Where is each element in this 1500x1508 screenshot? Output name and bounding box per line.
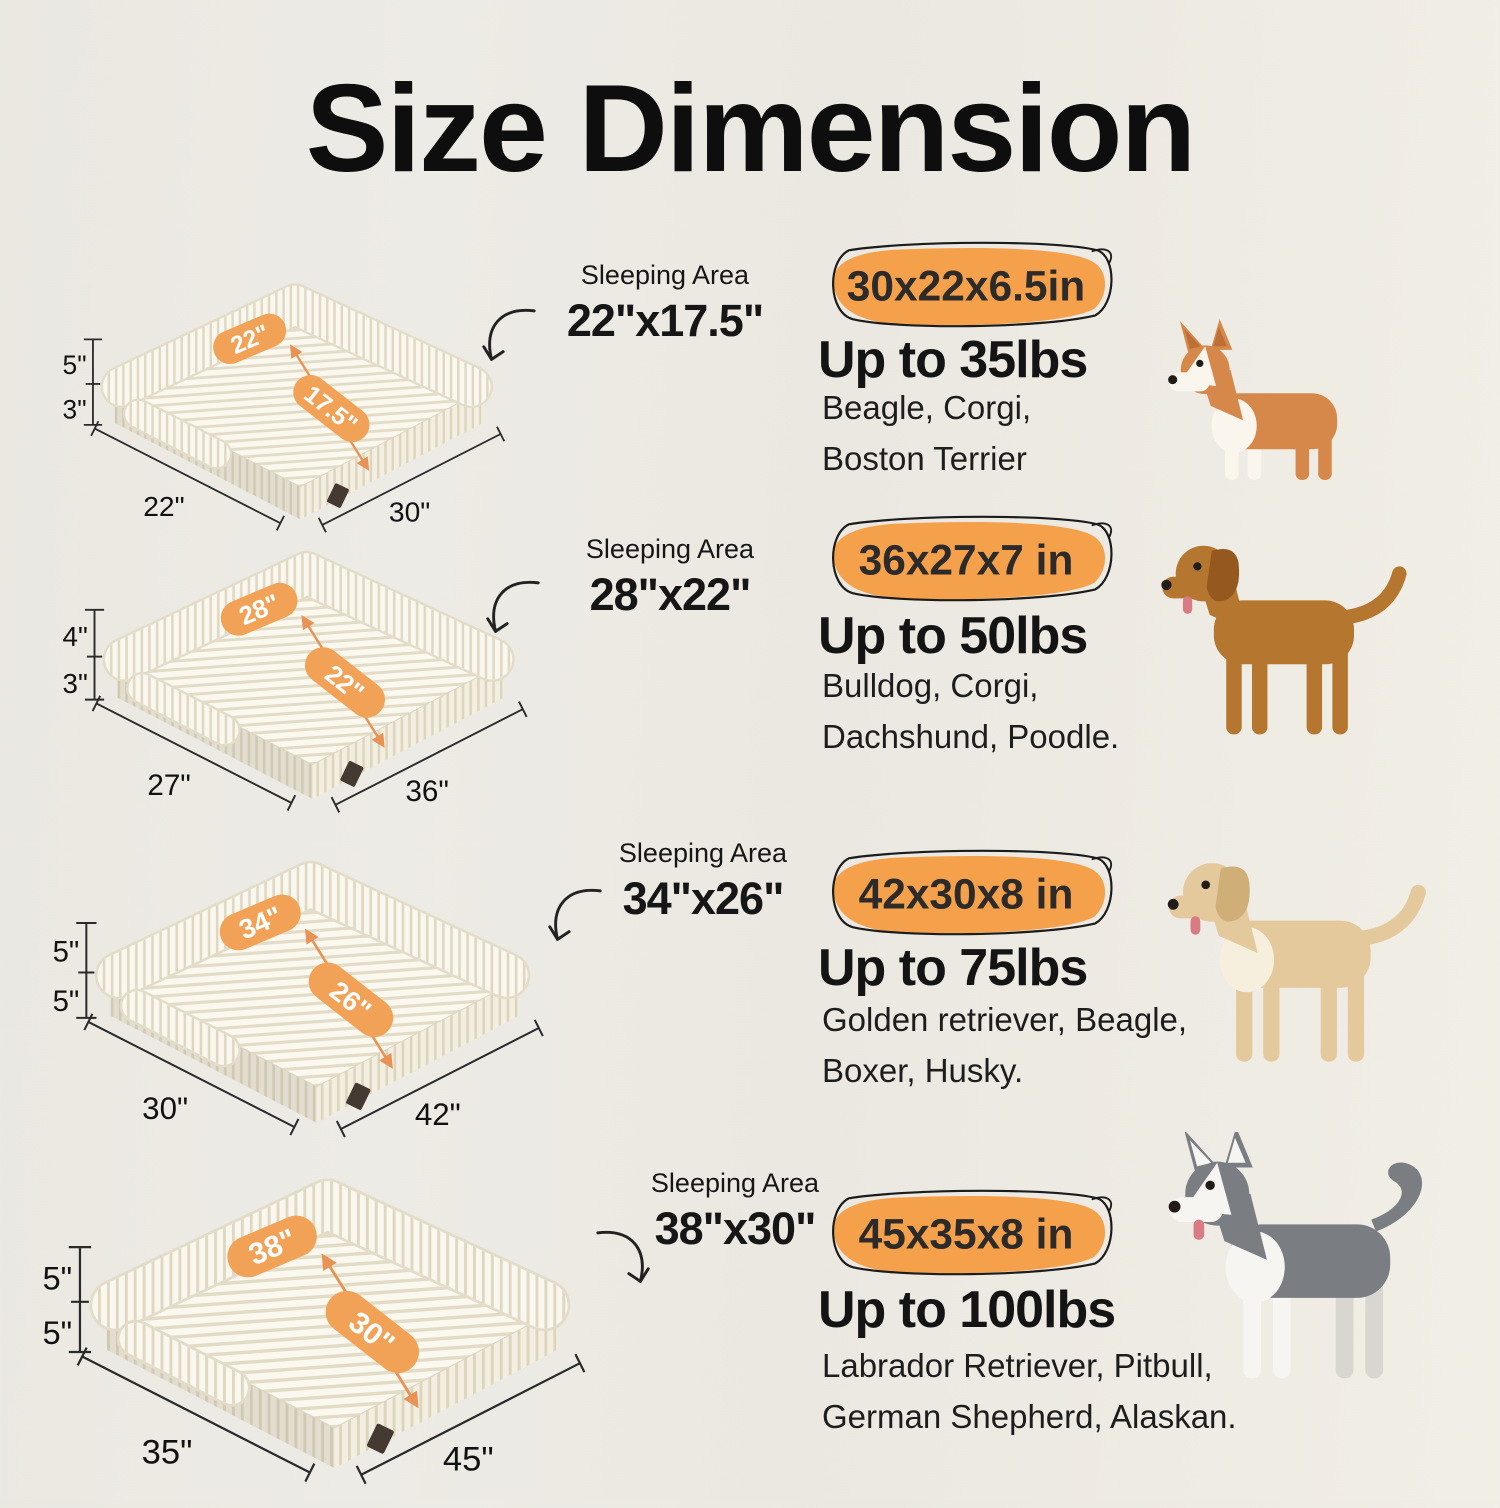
sleeping-area-callout: Sleeping Area 34"x26" xyxy=(568,838,838,925)
golden-retriever-illustration xyxy=(1152,520,1420,743)
width-label: 36" xyxy=(405,775,448,808)
dog-bed-isometric-drawing: 34" 26" 4.5" 3.5" 30" 42" xyxy=(52,826,557,1159)
base-height-label: 3.5" xyxy=(42,1315,72,1351)
base-height-label: 3" xyxy=(63,395,87,425)
breed-line: Dachshund, Poodle. xyxy=(822,711,1119,762)
breed-line: Golden retriever, Beagle, xyxy=(822,994,1187,1045)
height-dimension-lines xyxy=(85,610,104,700)
breed-line: Boston Terrier xyxy=(822,433,1031,484)
base-height-label: 3.5" xyxy=(52,985,79,1018)
husky-dog-photo xyxy=(1158,1132,1466,1388)
sleeping-area-label: Sleeping Area xyxy=(535,534,805,565)
bed-diagram-36x27: 28" 22" 4" 3" 27" 36" xyxy=(62,518,540,833)
badge-dimension-text: 36x27x7 in xyxy=(859,536,1074,583)
breed-list: Golden retriever, Beagle, Boxer, Husky. xyxy=(822,994,1187,1096)
hand-drawn-size-badge: 36x27x7 in xyxy=(815,512,1117,606)
page-title: Size Dimension xyxy=(0,58,1500,200)
labrador-dog-photo xyxy=(1158,836,1440,1070)
size-dimension-infographic: Size Dimension 22" 17.5" xyxy=(0,0,1500,1500)
golden-retriever-dog-photo xyxy=(1152,520,1420,743)
width-label: 45" xyxy=(443,1440,494,1478)
breed-list: Bulldog, Corgi, Dachshund, Poodle. xyxy=(822,660,1119,762)
curved-pointer-arrow-icon xyxy=(542,882,606,956)
size-badge: 30x22x6.5in xyxy=(815,238,1117,332)
weight-capacity-text: Up to 35lbs xyxy=(818,330,1087,390)
sleeping-area-value: 34"x26" xyxy=(568,873,838,925)
breed-line: Beagle, Corgi, xyxy=(822,382,1031,433)
weight-capacity-text: Up to 100lbs xyxy=(818,1280,1115,1340)
breed-list: Beagle, Corgi, Boston Terrier xyxy=(822,382,1031,484)
breed-line: Boxer, Husky. xyxy=(822,1045,1187,1096)
base-height-label: 3" xyxy=(63,668,88,699)
depth-label: 30" xyxy=(142,1091,188,1126)
bolster-height-label: 4.5" xyxy=(52,935,79,968)
dog-bed-isometric-drawing: 22" 17.5" 3.5" 3" 22" 30" xyxy=(62,252,517,552)
bed-diagram-42x30: 34" 26" 4.5" 3.5" 30" 42" xyxy=(52,826,557,1159)
sleeping-area-callout: Sleeping Area 22"x17.5" xyxy=(530,260,800,347)
bolster-height-label: 3.5" xyxy=(62,350,87,380)
size-badge: 36x27x7 in xyxy=(815,512,1117,606)
bed-diagram-45x35: 38" 30" 4.5" 3.5" 35" 45" xyxy=(42,1140,600,1508)
badge-dimension-text: 30x22x6.5in xyxy=(847,262,1085,309)
corgi-dog-photo xyxy=(1160,292,1395,487)
breed-line: German Shepherd, Alaskan. xyxy=(822,1391,1237,1442)
badge-dimension-text: 42x30x8 in xyxy=(859,870,1074,917)
corgi-illustration xyxy=(1160,292,1395,487)
sleeping-area-label: Sleeping Area xyxy=(530,260,800,291)
badge-dimension-text: 45x35x8 in xyxy=(859,1210,1074,1257)
weight-capacity-text: Up to 75lbs xyxy=(818,938,1087,998)
husky-illustration xyxy=(1158,1132,1466,1388)
sleeping-area-callout: Sleeping Area 28"x22" xyxy=(535,534,805,621)
bolster-height-label: 4" xyxy=(63,621,88,652)
sleeping-area-value: 22"x17.5" xyxy=(530,295,800,347)
dog-bed-isometric-drawing: 28" 22" 4" 3" 27" 36" xyxy=(62,518,540,833)
curved-pointer-arrow-icon xyxy=(480,574,544,648)
depth-label: 35" xyxy=(142,1434,193,1472)
breed-line: Bulldog, Corgi, xyxy=(822,660,1119,711)
curved-pointer-arrow-icon xyxy=(592,1224,656,1298)
height-dimension-lines xyxy=(84,339,102,425)
depth-label: 27" xyxy=(147,769,190,802)
curved-pointer-arrow-icon xyxy=(476,302,540,376)
dog-bed-isometric-drawing: 38" 30" 4.5" 3.5" 35" 45" xyxy=(42,1140,600,1508)
hand-drawn-size-badge: 42x30x8 in xyxy=(815,846,1117,940)
size-badge: 45x35x8 in xyxy=(815,1186,1117,1280)
width-label: 42" xyxy=(415,1097,461,1132)
sleeping-area-value: 28"x22" xyxy=(535,569,805,621)
sleeping-area-label: Sleeping Area xyxy=(568,838,838,869)
hand-drawn-size-badge: 45x35x8 in xyxy=(815,1186,1117,1280)
weight-capacity-text: Up to 50lbs xyxy=(818,606,1087,666)
bolster-height-label: 4.5" xyxy=(42,1261,72,1297)
hand-drawn-size-badge: 30x22x6.5in xyxy=(815,238,1117,332)
labrador-illustration xyxy=(1158,836,1440,1070)
bed-diagram-30x22: 22" 17.5" 3.5" 3" 22" 30" xyxy=(62,252,517,552)
size-badge: 42x30x8 in xyxy=(815,846,1117,940)
